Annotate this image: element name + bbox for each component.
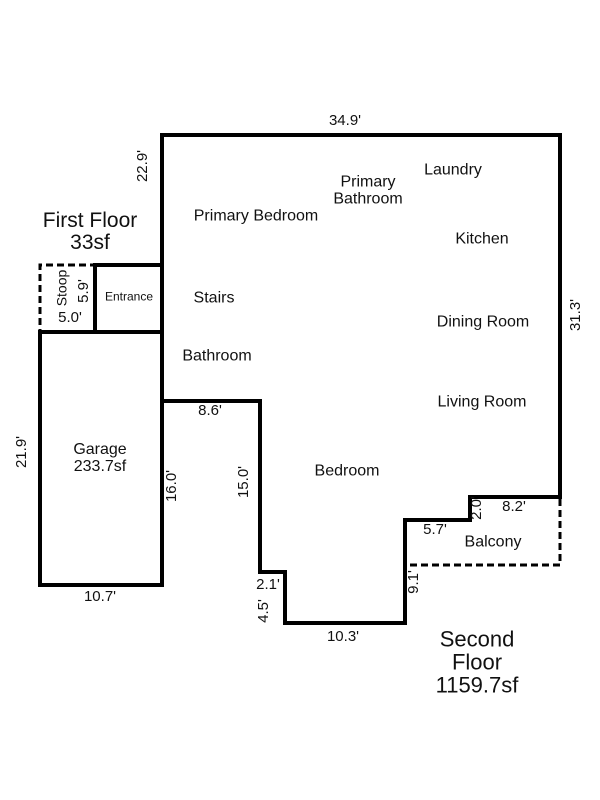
first-floor-title-block: First Floor 33sf (43, 210, 138, 254)
dim-label-bottom-width: 10.3' (327, 629, 359, 645)
room-label-primary-bedroom: Primary Bedroom (194, 207, 318, 224)
garage-area: 233.7sf (73, 459, 126, 476)
room-label-kitchen: Kitchen (455, 230, 508, 247)
garage-title-block: Garage 233.7sf (73, 442, 126, 476)
second-floor-title: Second Floor (416, 627, 539, 673)
dim-label-garage-bottom-width: 10.7' (84, 589, 116, 605)
room-label-living-room: Living Room (438, 393, 527, 410)
dim-label-garage-right-wall: 16.0' (164, 470, 180, 502)
dim-label-right-height: 31.3' (568, 299, 584, 331)
first-floor-area: 33sf (43, 232, 138, 254)
dim-label-step-width: 2.1' (256, 577, 280, 593)
dim-label-balcony-top-width: 5.7' (423, 522, 447, 538)
room-label-dining-room: Dining Room (437, 313, 529, 330)
room-label-entrance: Entrance (105, 291, 153, 304)
dim-label-garage-left-height: 21.9' (14, 436, 30, 468)
dim-label-upper-left-height: 22.9' (135, 150, 151, 182)
dim-label-balcony-left-height: 9.1' (406, 570, 422, 594)
room-label-laundry: Laundry (424, 161, 482, 178)
dim-label-stoop-depth: 5.9' (76, 279, 92, 303)
dim-label-balcony-step-height: 2.0' (469, 496, 485, 520)
room-label-garage: Garage (73, 442, 126, 459)
dim-label-balcony-top-right-width: 8.2' (502, 499, 526, 515)
room-label-primary-bathroom: Primary Bathroom (333, 174, 402, 209)
first-floor-title: First Floor (43, 210, 138, 232)
room-label-stoop: Stoop (54, 270, 69, 307)
room-label-bathroom: Bathroom (182, 347, 251, 364)
dim-label-stoop-width: 5.0' (58, 310, 82, 326)
room-label-stairs: Stairs (194, 289, 235, 306)
dim-label-step-height: 4.5' (256, 599, 272, 623)
floor-plan: First Floor 33sf Second Floor 1159.7sf G… (0, 0, 600, 800)
dim-label-left-notch-height: 15.0' (236, 466, 252, 498)
second-floor-title-block: Second Floor 1159.7sf (416, 627, 539, 696)
dim-label-top-width: 34.9' (329, 113, 361, 129)
room-label-balcony: Balcony (465, 533, 522, 550)
room-label-bedroom: Bedroom (315, 462, 380, 479)
dim-label-hallway-width: 8.6' (198, 403, 222, 419)
second-floor-area: 1159.7sf (416, 674, 539, 697)
